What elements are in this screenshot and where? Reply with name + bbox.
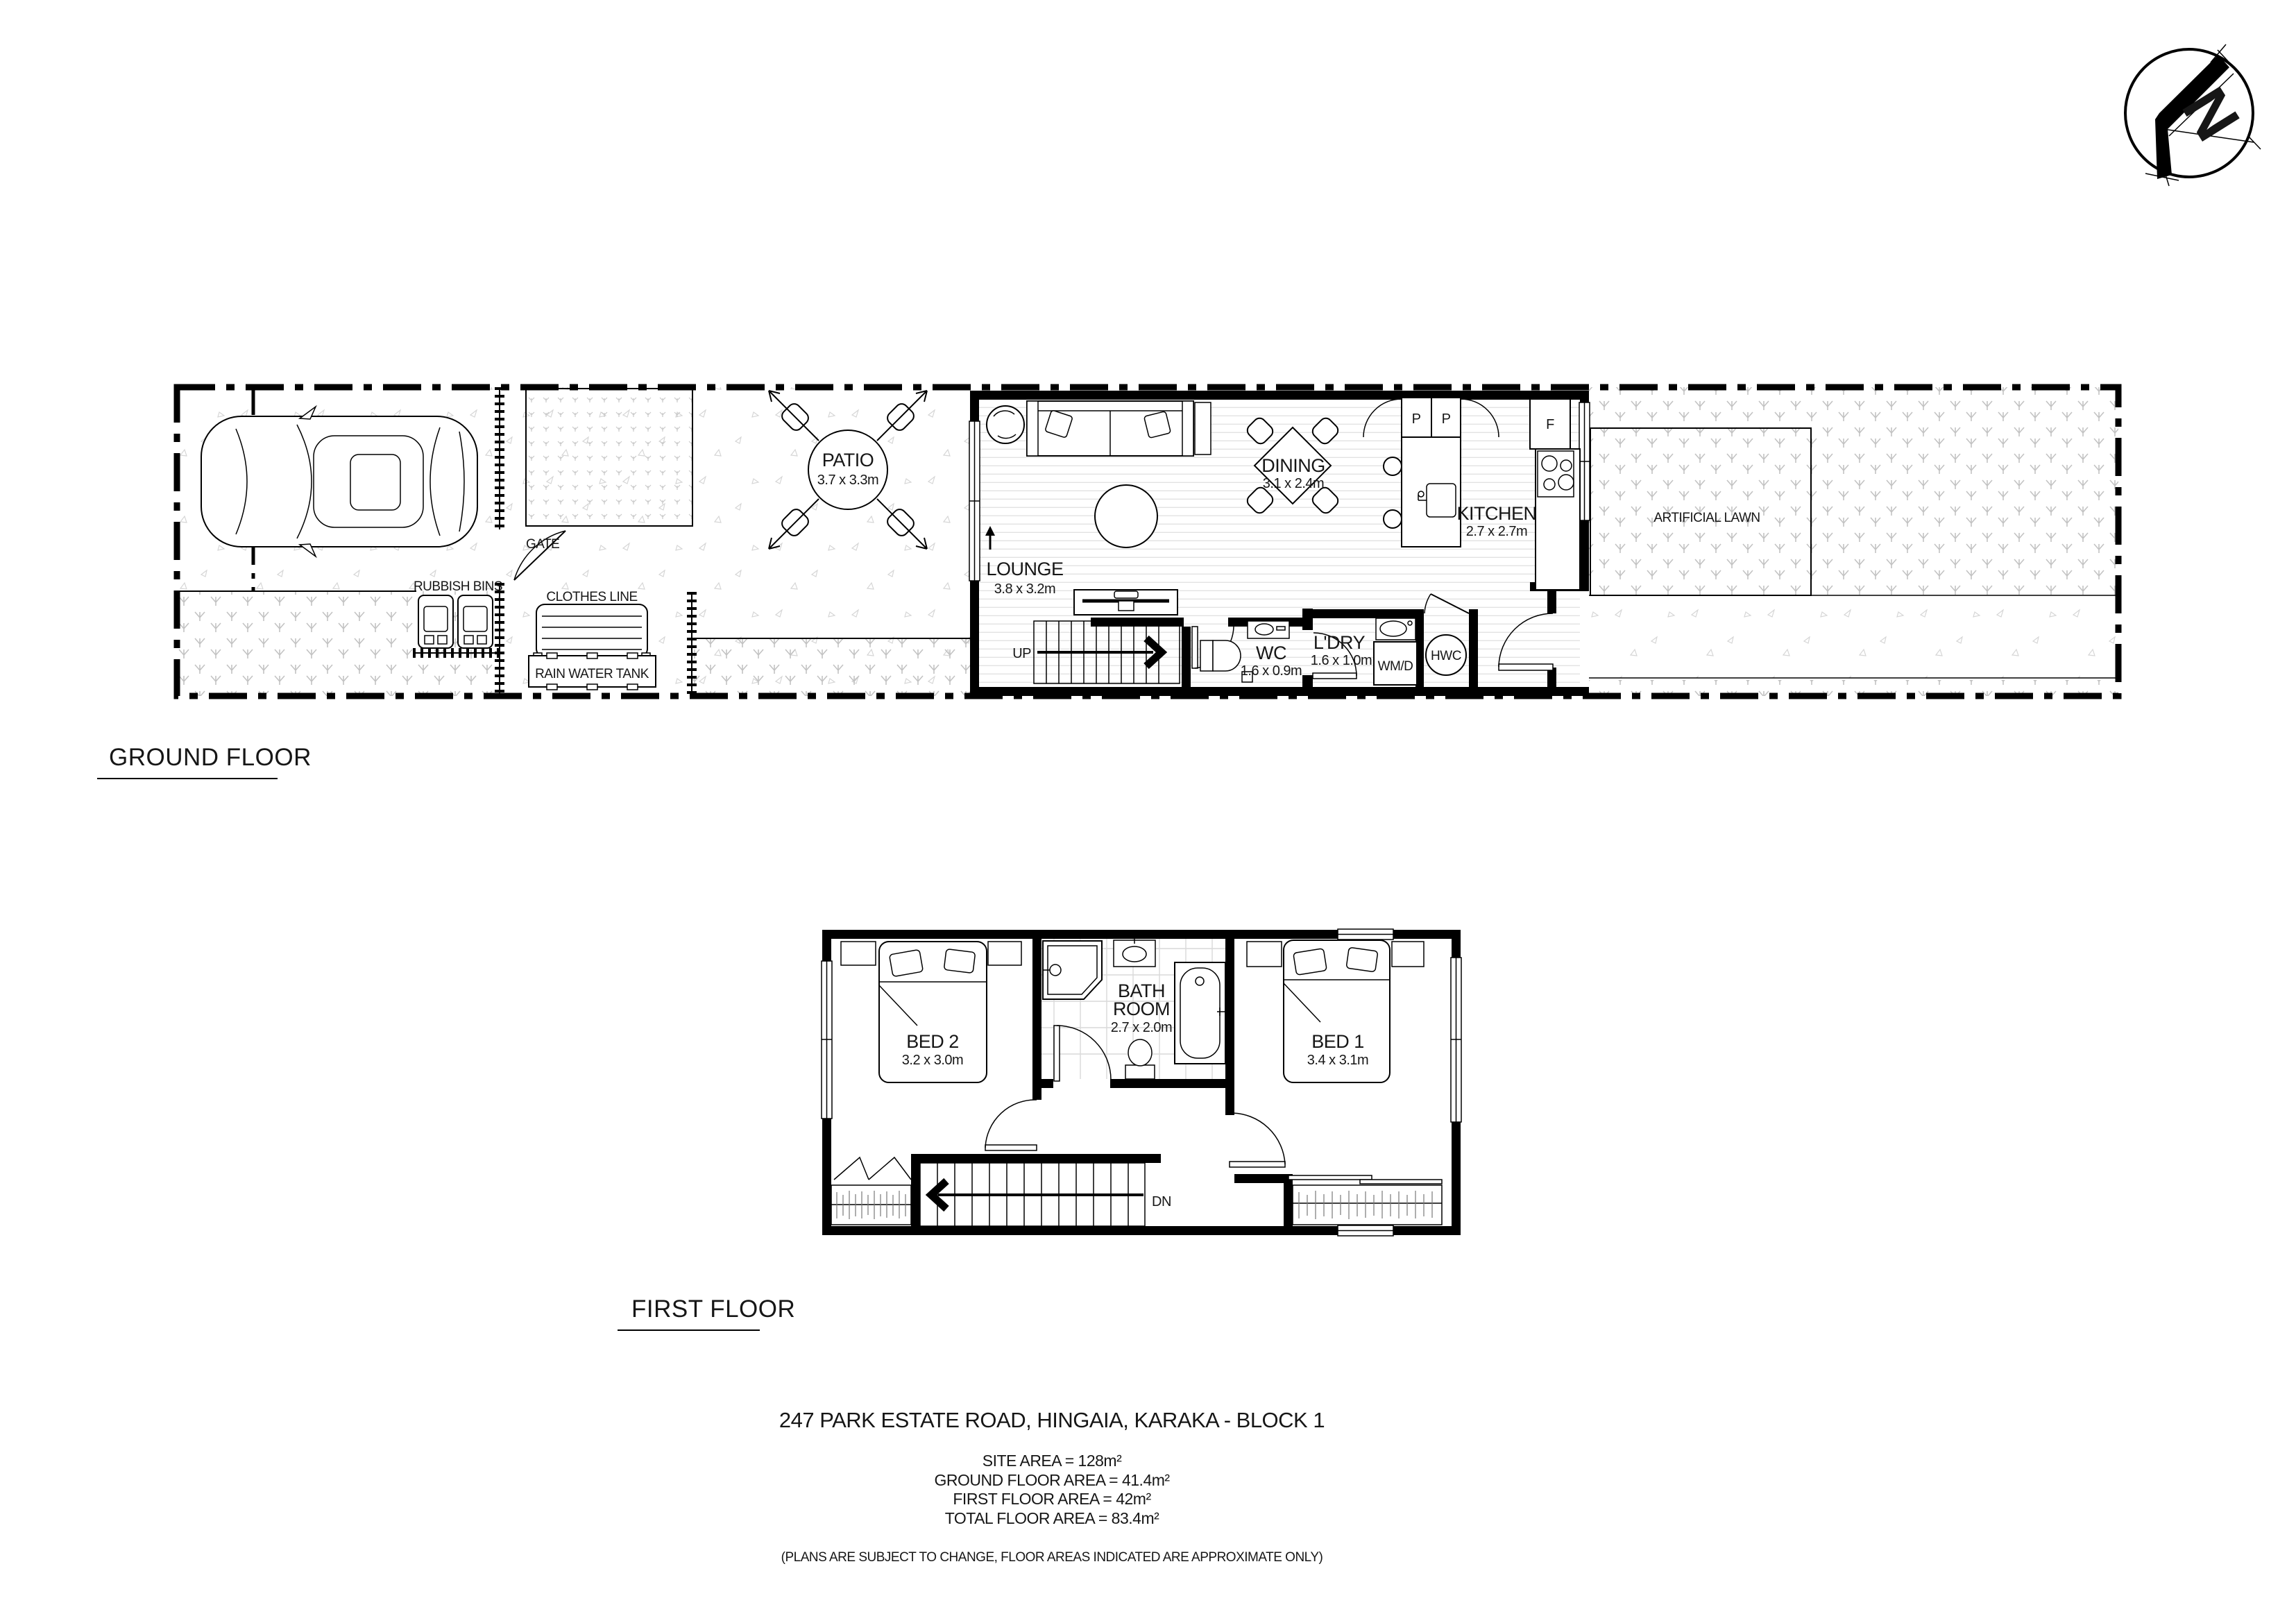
ground-floor-building: LOUNGE 3.8 x 3.2m DINING 3.1 x 2.4m [969, 391, 1590, 696]
floor-plan-drawing: N GATE [0, 0, 2296, 1623]
lounge-label: LOUNGE [986, 559, 1063, 579]
clothes-line: CLOTHES LINE [534, 590, 650, 660]
rain-water-tank-label: RAIN WATER TANK [535, 667, 649, 681]
address-title: 247 PARK ESTATE ROAD, HINGAIA, KARAKA - … [779, 1408, 1325, 1432]
ldry-label: L'DRY [1313, 632, 1366, 653]
bed2-wardrobe [831, 1157, 911, 1225]
bathroom-dims: 2.7 x 2.0m [1111, 1020, 1172, 1035]
north-arrow-icon: N [2125, 44, 2261, 186]
floor-plan-page: { "north_arrow": { "label": "N" }, "grou… [0, 0, 2296, 1623]
bed1-window [1451, 958, 1461, 1122]
lounge-dims: 3.8 x 3.2m [994, 581, 1055, 597]
kitchen-label: KITCHEN [1456, 503, 1536, 524]
disclaimer-line: (PLANS ARE SUBJECT TO CHANGE, FLOOR AREA… [781, 1550, 1323, 1565]
stairs-first: DN [920, 1163, 1171, 1226]
bathroom-label-line2: ROOM [1113, 999, 1170, 1019]
car [201, 407, 477, 556]
bed2-dims: 3.2 x 3.0m [902, 1053, 963, 1068]
clothes-line-label: CLOTHES LINE [546, 590, 637, 604]
garden-bed [526, 389, 692, 526]
site-area-line: SITE AREA = 128m² [983, 1452, 1122, 1470]
ground-floor-area-line: GROUND FLOOR AREA = 41.4m² [934, 1471, 1170, 1489]
patio-dims: 3.7 x 3.3m [817, 473, 878, 488]
hwc-label: HWC [1431, 649, 1461, 663]
first-floor-plan: BED 2 3.2 x 3.0m BATH ROOM 2.7 x 2.0m [618, 929, 1461, 1330]
dining-label: DINING [1261, 455, 1325, 476]
rain-water-tank: RAIN WATER TANK [529, 653, 656, 690]
up-label: UP [1012, 646, 1031, 661]
pantry-left-label: P [1412, 411, 1421, 427]
ground-floor-plan: GATE RUBBISH BINS [97, 387, 2118, 779]
total-floor-area-line: TOTAL FLOOR AREA = 83.4m² [945, 1509, 1159, 1527]
wc-dims: 1.6 x 0.9m [1241, 663, 1302, 679]
bed1-top-window [1338, 929, 1393, 940]
bed1-dims: 3.4 x 3.1m [1307, 1053, 1368, 1068]
gate-label: GATE [526, 537, 559, 552]
bed1-door [1230, 1113, 1285, 1167]
bed2-label: BED 2 [906, 1031, 959, 1052]
title-block: 247 PARK ESTATE ROAD, HINGAIA, KARAKA - … [779, 1408, 1325, 1565]
east-window [1579, 402, 1590, 520]
artificial-lawn-label: ARTIFICIAL LAWN [1653, 511, 1760, 525]
wmd-label: WM/D [1378, 659, 1413, 674]
dining-dims: 3.1 x 2.4m [1263, 476, 1324, 491]
bed1-wardrobe [1289, 1175, 1442, 1225]
ground-floor-section-label: GROUND FLOOR [109, 744, 312, 771]
rubbish-bins-label: RUBBISH BINS [414, 579, 502, 594]
bed2-window [822, 961, 832, 1119]
ldry-dims: 1.6 x 1.0m [1311, 653, 1372, 668]
pantry-right-label: P [1442, 411, 1451, 427]
kitchen-dims: 2.7 x 2.7m [1466, 524, 1527, 539]
wc-label: WC [1256, 643, 1286, 663]
bed1-bottom-window [1338, 1225, 1393, 1236]
bed1-label: BED 1 [1311, 1031, 1364, 1052]
rubbish-bins: RUBBISH BINS [414, 579, 502, 648]
west-window [969, 421, 980, 581]
first-floor-area-line: FIRST FLOOR AREA = 42m² [953, 1490, 1151, 1508]
fridge-label: F [1546, 417, 1554, 432]
first-floor-section-label: FIRST FLOOR [631, 1295, 795, 1323]
dn-label: DN [1152, 1194, 1171, 1209]
bed2-door [985, 1100, 1037, 1150]
patio-label: PATIO [822, 450, 874, 470]
